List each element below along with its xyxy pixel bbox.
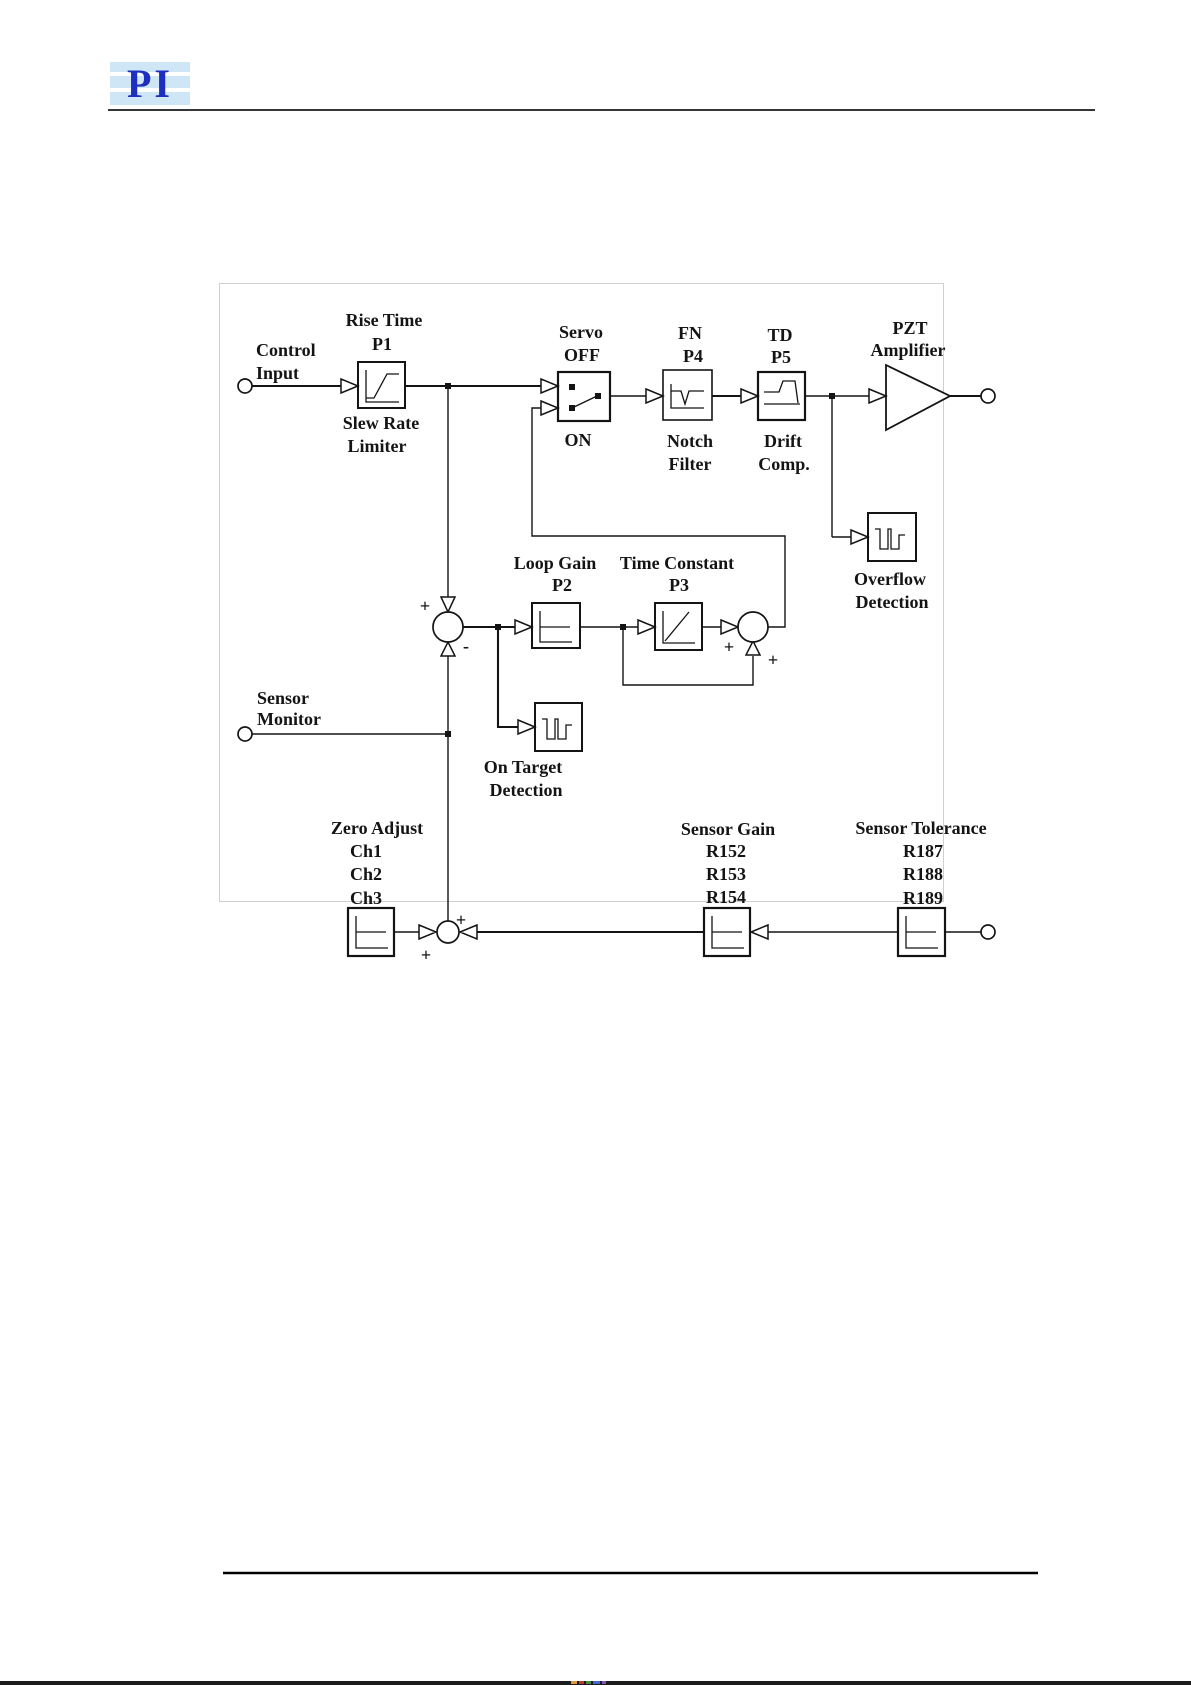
block-on-target-detection — [535, 703, 582, 751]
label-control: Control — [256, 340, 316, 360]
terminal-pzt-output — [981, 389, 995, 403]
label-p4: P4 — [683, 346, 703, 366]
label-fn: FN — [678, 323, 702, 343]
block-drift-comp — [758, 372, 805, 420]
label-sensor: Sensor — [257, 688, 309, 708]
sign-main-sum-plus: + — [420, 596, 430, 616]
summing-junction-main — [433, 612, 463, 642]
label-monitor: Monitor — [257, 709, 321, 729]
terminal-sensor-input — [981, 925, 995, 939]
label-ch1: Ch1 — [350, 841, 382, 861]
label-amplifier: Amplifier — [871, 340, 946, 360]
label-sensor-tolerance: Sensor Tolerance — [855, 818, 986, 838]
label-drift: Drift — [764, 431, 802, 451]
bottom-edge-speck — [593, 1681, 600, 1684]
label-comp: Comp. — [758, 454, 810, 474]
label-r154: R154 — [706, 887, 746, 907]
bottom-edge-speck — [602, 1681, 606, 1684]
label-zero-adjust: Zero Adjust — [331, 818, 423, 838]
block-loop-gain — [532, 603, 580, 648]
label-servo-off: OFF — [564, 345, 600, 365]
sign-sensor-sum-plus-right: + — [456, 910, 466, 930]
label-p5: P5 — [771, 347, 791, 367]
sign-loop-sum-plus-in: + — [724, 637, 734, 657]
overflow-box — [868, 513, 916, 561]
block-notch-filter — [663, 370, 712, 420]
label-ch3: Ch3 — [350, 888, 382, 908]
label-ch2: Ch2 — [350, 864, 382, 884]
sign-sensor-sum-plus-left: + — [421, 945, 431, 965]
block-slew-rate-limiter — [358, 362, 405, 408]
drift-comp-box — [758, 372, 805, 420]
label-loop-gain: Loop Gain — [514, 553, 597, 573]
label-control-input: Input — [256, 363, 299, 383]
label-overflow: Overflow — [854, 569, 926, 589]
terminal-control-input — [238, 379, 252, 393]
bottom-edge-speck — [571, 1681, 577, 1684]
sign-main-sum-minus: - — [463, 636, 469, 656]
label-rise-time: Rise Time — [346, 310, 423, 330]
summing-junction-loop — [738, 612, 768, 642]
label-td: TD — [767, 325, 792, 345]
amplifier-triangle — [886, 365, 950, 430]
label-r189: R189 — [903, 888, 943, 908]
label-on-target: On Target — [484, 757, 563, 777]
label-sensor-gain: Sensor Gain — [681, 819, 775, 839]
label-time-constant: Time Constant — [620, 553, 734, 573]
label-r188: R188 — [903, 864, 943, 884]
block-zero-adjust — [348, 908, 394, 956]
block-servo-switch — [558, 372, 610, 421]
label-on-target-detection: Detection — [490, 780, 563, 800]
label-notch: Notch — [667, 431, 713, 451]
label-r153: R153 — [706, 864, 746, 884]
label-r152: R152 — [706, 841, 746, 861]
label-p1: P1 — [372, 334, 392, 354]
label-limiter: Limiter — [348, 436, 407, 456]
bottom-edge-speck — [579, 1681, 584, 1684]
block-pzt-amplifier — [886, 365, 950, 430]
block-time-constant — [655, 603, 702, 650]
block-diagram: Control Input Rise Time P1 Slew Rate Lim… — [0, 0, 1191, 1685]
loop-gain-box — [532, 603, 580, 648]
label-p2: P2 — [552, 575, 572, 595]
label-filter: Filter — [669, 454, 712, 474]
label-servo: Servo — [559, 322, 603, 342]
label-pzt: PZT — [892, 318, 927, 338]
bottom-edge-speck — [586, 1681, 591, 1684]
sign-loop-sum-plus-bottom: + — [768, 650, 778, 670]
block-sensor-tolerance — [898, 908, 945, 956]
manual-page: PI — [0, 0, 1191, 1685]
label-servo-on: ON — [565, 430, 592, 450]
label-p3: P3 — [669, 575, 689, 595]
label-overflow-detection: Detection — [856, 592, 929, 612]
label-slew-rate: Slew Rate — [343, 413, 419, 433]
servo-switch-box — [558, 372, 610, 421]
label-r187: R187 — [903, 841, 943, 861]
block-overflow-detection — [868, 513, 916, 561]
block-sensor-gain — [704, 908, 750, 956]
terminal-sensor-monitor — [238, 727, 252, 741]
